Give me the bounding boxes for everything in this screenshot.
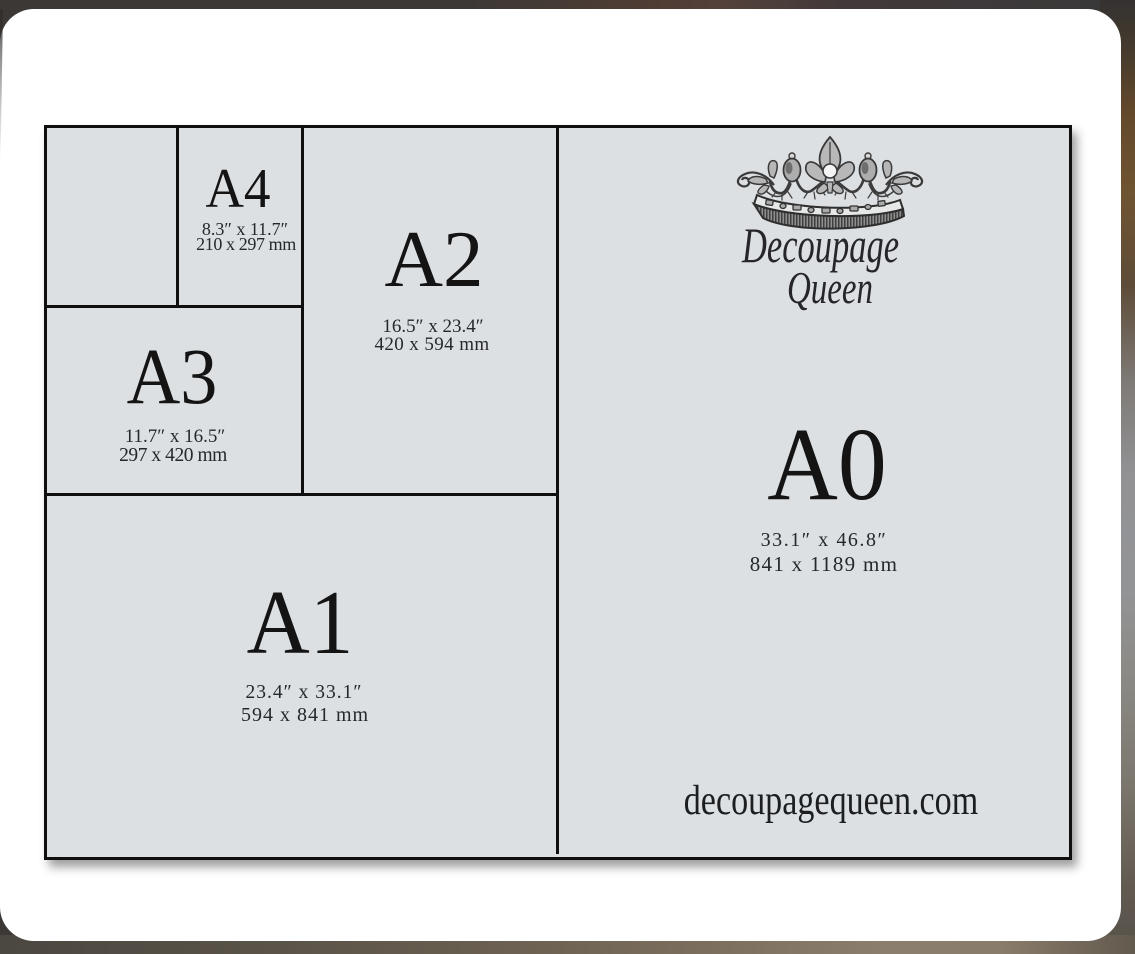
svg-text:Queen: Queen xyxy=(787,262,873,313)
